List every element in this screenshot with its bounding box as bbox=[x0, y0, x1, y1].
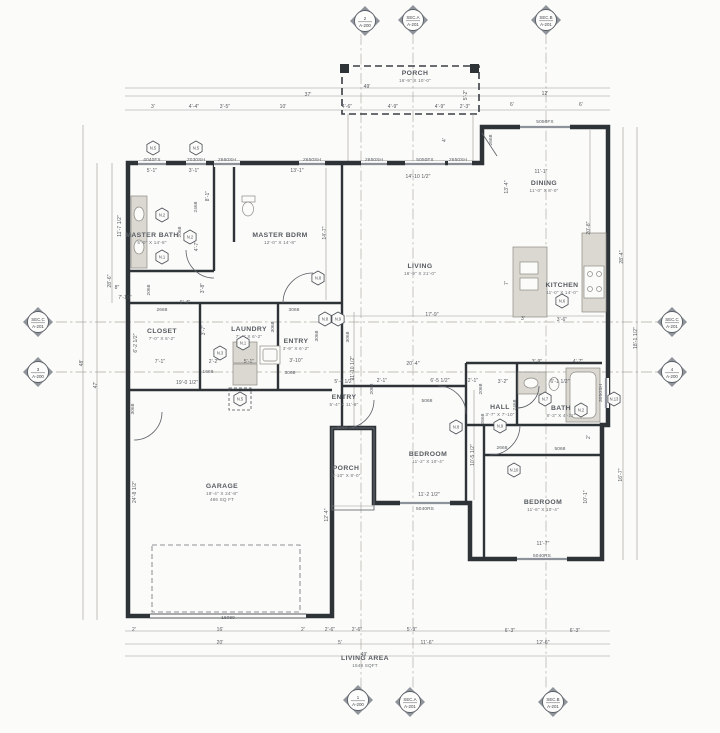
door-label: 3068 bbox=[336, 425, 347, 431]
dimension-label: 6'-4" bbox=[180, 300, 191, 306]
dimension-label: 28'-6" bbox=[107, 274, 113, 287]
door-label: 3068 bbox=[284, 370, 295, 376]
section-marker: 2A-200 bbox=[350, 6, 380, 36]
dimension-label: 10'-1" bbox=[583, 490, 589, 503]
dimension-label: 20'-4" bbox=[406, 361, 419, 367]
dimension-label: 3'-1" bbox=[189, 168, 200, 174]
room-size-label: 7'-0" X 6'-2" bbox=[149, 336, 176, 341]
dimension-label: 17'-9" bbox=[425, 312, 438, 318]
section-marker-circle bbox=[543, 692, 564, 713]
door-swing bbox=[283, 273, 313, 303]
garage-door-swing-dashed bbox=[152, 545, 300, 612]
keynote-marker: N.5 bbox=[190, 141, 202, 155]
keynote-marker: N.5 bbox=[147, 141, 159, 155]
dimension-label: 6'-3" bbox=[505, 628, 516, 634]
keynote-marker: N.1 bbox=[156, 250, 168, 264]
keynote-marker: N.6 bbox=[556, 294, 568, 308]
island-sink bbox=[520, 262, 538, 274]
room-label: BATH bbox=[551, 405, 571, 412]
section-marker-circle bbox=[662, 362, 683, 383]
door-label: 1668 bbox=[202, 369, 213, 375]
dimension-label: 3'-5" bbox=[220, 104, 231, 110]
keynote-label: N.13 bbox=[610, 397, 619, 402]
room-label: CLOSET bbox=[147, 328, 177, 335]
room-size-label: 11'-2" X 10'-4" bbox=[412, 459, 444, 464]
section-marker-circle bbox=[403, 10, 424, 31]
window-label: 4040FX bbox=[143, 157, 161, 163]
window-label: 3050SH bbox=[598, 384, 604, 402]
room-label: ENTRY bbox=[332, 394, 357, 401]
room-size-label: 5'-4" X 11'-8" bbox=[330, 402, 359, 407]
door-label: 2468 bbox=[193, 201, 199, 212]
keynote-label: N.9 bbox=[497, 424, 504, 429]
section-marker-circle bbox=[662, 312, 683, 333]
dimension-label: 7'-10" bbox=[118, 295, 131, 301]
dimension-labels: 49'37'12'3'4'-4"3'-5"10'4'-6"4'-9"4'-9"2… bbox=[79, 84, 639, 658]
section-marker-sheet: A-201 bbox=[547, 704, 559, 709]
dimension-label: 10' bbox=[280, 104, 287, 110]
door-label: 3068 bbox=[288, 307, 299, 313]
door-label: 2668 bbox=[496, 445, 507, 451]
room-label: HALL bbox=[490, 404, 510, 411]
window-label: 5050FX bbox=[416, 157, 434, 163]
dimension-label: 37' bbox=[305, 92, 312, 98]
keynote-label: N.2 bbox=[187, 235, 194, 240]
room-size-label: 11'-6" X 10'-4" bbox=[527, 507, 559, 512]
sink-fixture bbox=[524, 378, 538, 388]
room-label: GARAGE bbox=[206, 483, 238, 490]
dimension-label: 12'-4" bbox=[324, 508, 330, 521]
keynote-label: N.5 bbox=[150, 146, 157, 151]
keynote-marker: N.1 bbox=[237, 336, 249, 350]
dimension-label: 14'-10 1/2" bbox=[406, 174, 431, 180]
porch-post bbox=[470, 64, 479, 73]
dimension-label: 6' bbox=[579, 102, 583, 108]
dimension-label: 7'-1" bbox=[155, 359, 166, 365]
dimension-label: 5'-9" bbox=[407, 627, 418, 633]
keynote-marker: N.2 bbox=[575, 403, 587, 417]
room-label: BEDROOM bbox=[524, 499, 562, 506]
window-label: 2660SH bbox=[218, 157, 236, 163]
dimension-label: 6'-5 1/2" bbox=[430, 378, 449, 384]
dimension-label: 28'-4" bbox=[619, 250, 625, 263]
keynote-label: N.5 bbox=[237, 397, 244, 402]
door-label: 5068 bbox=[421, 398, 432, 404]
dimension-label: 5'-1" bbox=[244, 359, 255, 365]
dimension-label: 2'-1" bbox=[468, 378, 479, 384]
section-marker-sheet: A-201 bbox=[32, 324, 44, 329]
room-size-label: 3'-7" X 7'-10" bbox=[485, 412, 514, 417]
toilet-fixture bbox=[243, 202, 254, 216]
keynote-label: N.1 bbox=[159, 255, 166, 260]
room-label: LIVING bbox=[407, 263, 432, 270]
door-label: 3068 bbox=[314, 330, 320, 341]
room-size-label: 19'-4" X 24'-8" bbox=[206, 491, 238, 496]
window-label: 5050FX bbox=[536, 119, 554, 125]
dimension-label: 49' bbox=[364, 84, 371, 90]
dimension-label: 11'-7 1/2" bbox=[117, 215, 123, 237]
toilet-tank bbox=[242, 196, 255, 202]
section-marker: SEC.CA-201 bbox=[657, 307, 687, 337]
dimension-label: 2'-3" bbox=[460, 104, 471, 110]
dimension-label: 3' bbox=[151, 104, 155, 110]
section-marker-number: SEC.B bbox=[539, 15, 552, 20]
room-area-label: 486 SQ FT bbox=[210, 497, 234, 502]
dimension-label: 3'-9" bbox=[532, 359, 543, 365]
window-label: 16080 bbox=[221, 615, 235, 621]
section-marker-sheet: A-200 bbox=[666, 374, 678, 379]
room-size-label: 11'-0" X 8'-0" bbox=[530, 188, 559, 193]
section-marker-circle bbox=[355, 11, 376, 32]
door-label: 2668 bbox=[156, 307, 167, 313]
dimension-label: 11'-1" bbox=[535, 169, 548, 175]
section-marker: SEC.AA-201 bbox=[398, 5, 428, 35]
dimension-label: 2' bbox=[301, 627, 305, 633]
keynote-label: N.7 bbox=[542, 397, 549, 402]
section-marker: SEC.BA-201 bbox=[531, 5, 561, 35]
door-label: 2668 bbox=[488, 134, 494, 145]
keynote-label: N.6 bbox=[559, 299, 566, 304]
section-marker: 4A-200 bbox=[657, 357, 687, 387]
section-marker-sheet: A-200 bbox=[32, 374, 44, 379]
door-label: 3068 bbox=[345, 331, 351, 342]
dimension-label: 5'-2" bbox=[463, 90, 469, 101]
keynote-marker: N.8 bbox=[450, 420, 462, 434]
door-swing bbox=[438, 386, 466, 414]
door-label: 3068 bbox=[130, 403, 136, 414]
dimension-label: 2'-6" bbox=[325, 627, 336, 633]
room-size-label: 8'-3" X 4'-11" bbox=[547, 413, 576, 418]
window-label: 5040RS bbox=[416, 506, 434, 512]
fixtures bbox=[131, 196, 606, 422]
dimension-label: 11'-7" bbox=[537, 541, 550, 547]
keynote-label: N.8 bbox=[322, 317, 329, 322]
section-marker-number: SEC.C bbox=[31, 317, 44, 322]
keynote-marker: N.3 bbox=[214, 346, 226, 360]
section-marker-sheet: A-201 bbox=[666, 324, 678, 329]
dimension-label: 10'-5 1/2" bbox=[470, 444, 476, 466]
keynote-marker: N.2 bbox=[184, 230, 196, 244]
keynote-marker: N.8 bbox=[312, 271, 324, 285]
window-label: 2030SH bbox=[187, 157, 205, 163]
dimension-label: 4'-9" bbox=[388, 104, 399, 110]
dimension-label: 47' bbox=[93, 382, 99, 389]
dimension-label: 3'-7" bbox=[201, 325, 207, 336]
dimension-label: 12'-6" bbox=[536, 640, 549, 646]
dimension-label: 7' bbox=[504, 281, 510, 285]
door-label: 5068 bbox=[554, 446, 565, 452]
section-cut-lines bbox=[56, 33, 660, 690]
dimension-label: 2'-2" bbox=[209, 359, 220, 365]
door-label: 2068 bbox=[146, 284, 152, 295]
porch-post bbox=[340, 64, 349, 73]
keynote-marker: N.7 bbox=[539, 392, 551, 406]
room-size-label: 4'-10" X 8'-0" bbox=[331, 473, 360, 478]
room-size-label: 1549 SQFT bbox=[352, 663, 378, 668]
window-label: 2650SH bbox=[303, 157, 321, 163]
dimension-label: 5'-4 1/2" bbox=[334, 379, 353, 385]
room-label: MASTER BATH bbox=[125, 232, 178, 239]
keynote-marker: N.2 bbox=[156, 208, 168, 222]
dimension-label: 4'-7" bbox=[194, 241, 200, 252]
dimension-label: 18'-1 1/2" bbox=[633, 327, 639, 349]
dimension-label: 3'-10" bbox=[289, 358, 302, 364]
dimension-label: 11'-10 1/2" bbox=[350, 356, 356, 381]
room-label: BEDROOM bbox=[409, 451, 447, 458]
room-label: PORCH bbox=[333, 465, 360, 472]
dimension-label: 16' bbox=[217, 627, 224, 633]
room-label: LIVING AREA bbox=[341, 655, 389, 662]
room-size-label: 12'-0" X 14'-8" bbox=[264, 240, 296, 245]
section-marker-sheet: A-200 bbox=[352, 702, 364, 707]
dimension-label: 13'-1" bbox=[290, 168, 303, 174]
section-marker: SEC.AA-201 bbox=[395, 687, 425, 717]
keynote-marker: N.9 bbox=[494, 419, 506, 433]
dimension-label: 6'-2 1/2" bbox=[133, 333, 139, 352]
room-size-label: 16'-9" X 10'-0" bbox=[399, 78, 431, 83]
room-size-label: 16'-9" X 21'-0" bbox=[404, 271, 436, 276]
dryer-fixture bbox=[233, 364, 257, 385]
keynote-label: N.2 bbox=[159, 213, 166, 218]
dimension-label: 3'-8" bbox=[200, 283, 206, 294]
room-label: ENTRY bbox=[284, 338, 309, 345]
section-marker: 3A-200 bbox=[23, 357, 53, 387]
section-marker-number: SEC.A bbox=[406, 15, 419, 20]
keynote-label: N.2 bbox=[578, 408, 585, 413]
keynote-marker: N.9 bbox=[332, 312, 344, 326]
dimension-label: 4'-9" bbox=[435, 104, 446, 110]
section-marker-number: SEC.C bbox=[665, 317, 678, 322]
section-marker-sheet: A-201 bbox=[407, 22, 419, 27]
keynote-label: N.1 bbox=[240, 341, 247, 346]
section-marker-number: SEC.A bbox=[403, 697, 416, 702]
section-marker-circle bbox=[400, 692, 421, 713]
section-marker-sheet: A-200 bbox=[359, 23, 371, 28]
dimension-label: 5'-1" bbox=[147, 168, 158, 174]
keynote-marker: N.5 bbox=[229, 388, 251, 410]
room-label: PORCH bbox=[402, 70, 429, 77]
section-marker: 1A-200 bbox=[343, 685, 373, 715]
section-marker-circle bbox=[348, 690, 369, 711]
dimension-label: 2' bbox=[132, 627, 136, 633]
door-swing bbox=[134, 412, 162, 440]
range-fixture bbox=[584, 266, 604, 298]
dimension-label: 4' bbox=[442, 138, 448, 142]
dimension-label: 11'-6" bbox=[421, 640, 434, 646]
section-marker-circle bbox=[28, 362, 49, 383]
window-label: 2650SH bbox=[365, 157, 383, 163]
floor-plan-sheet: 4040FX2030SH2660SH2650SH2650SH5050FX2650… bbox=[0, 0, 720, 733]
keynote-marker: N.13 bbox=[608, 392, 620, 406]
section-marker: SEC.CA-201 bbox=[23, 307, 53, 337]
dimension-label: 16'-7" bbox=[618, 468, 624, 481]
dimension-label: 20' bbox=[217, 640, 224, 646]
dimension-label: 5' bbox=[338, 640, 342, 646]
dimension-label: 4'-6" bbox=[342, 104, 353, 110]
floor-plan-drawing: 4040FX2030SH2660SH2650SH2650SH5050FX2650… bbox=[0, 0, 720, 733]
section-marker-sheet: A-201 bbox=[540, 22, 552, 27]
island-sink bbox=[520, 278, 538, 290]
keynote-label: N.10 bbox=[510, 468, 519, 473]
dimension-label: 20'-8" bbox=[586, 221, 592, 234]
dimension-label: 2' bbox=[586, 435, 592, 439]
dimension-label: 6'-3" bbox=[570, 628, 581, 634]
dimension-label: 24'-8 1/2" bbox=[132, 481, 138, 503]
dimension-label: 8" bbox=[115, 285, 120, 291]
garage-door bbox=[150, 545, 306, 621]
room-size-label: 5'-0" X 14'-8" bbox=[137, 240, 166, 245]
dimension-label: 6' bbox=[510, 102, 514, 108]
keynote-label: N.8 bbox=[315, 276, 322, 281]
dimension-label: 11'-2 1/2" bbox=[418, 492, 440, 498]
laundry-sink-basin bbox=[263, 349, 277, 361]
keynote-marker: N.10 bbox=[508, 463, 520, 477]
dimension-label: 6'-1 1/2" bbox=[550, 379, 569, 385]
dimension-label: 12' bbox=[542, 91, 549, 97]
door-label: 3068 bbox=[270, 321, 276, 332]
door-label: 2468 bbox=[512, 399, 518, 410]
dimension-label: 3'-2" bbox=[498, 379, 509, 385]
keynote-marker: N.8 bbox=[319, 312, 331, 326]
section-marker-circle bbox=[28, 312, 49, 333]
dimension-label: 19'-0 1/2" bbox=[176, 380, 198, 386]
dimension-label: 8'-1" bbox=[205, 191, 211, 202]
dimension-label: 2'-6" bbox=[352, 627, 363, 633]
door-swing bbox=[186, 250, 214, 278]
dimension-label: 2'-1" bbox=[377, 378, 388, 384]
dimension-label: 3'-6" bbox=[557, 317, 568, 323]
window-label: 2650SH bbox=[449, 157, 467, 163]
window-label: 5040RS bbox=[533, 553, 551, 559]
keynote-label: N.3 bbox=[217, 351, 224, 356]
section-marker: SEC.BA-201 bbox=[538, 687, 568, 717]
room-label: DINING bbox=[531, 180, 557, 187]
room-label: KITCHEN bbox=[545, 282, 578, 289]
keynote-label: N.5 bbox=[193, 146, 200, 151]
dimension-label: 4'-4" bbox=[189, 104, 200, 110]
room-size-label: 3'-9" X 6'-2" bbox=[283, 346, 310, 351]
dimension-label: 14'-7" bbox=[322, 226, 328, 239]
keynote-label: N.9 bbox=[335, 317, 342, 322]
dimension-label: 3' bbox=[521, 316, 525, 322]
sink-fixture bbox=[134, 207, 144, 221]
dimension-label: 4'-7" bbox=[573, 359, 584, 365]
keynote-label: N.8 bbox=[453, 425, 460, 430]
dimension-label: 13'-4" bbox=[504, 180, 510, 193]
section-marker-sheet: A-201 bbox=[404, 704, 416, 709]
door-label: 2068 bbox=[478, 383, 484, 394]
room-label: MASTER BDRM bbox=[252, 232, 307, 239]
section-marker-number: SEC.B bbox=[546, 697, 559, 702]
room-label: LAUNDRY bbox=[231, 326, 267, 333]
section-marker-circle bbox=[536, 10, 557, 31]
door-label: 2068 bbox=[369, 383, 375, 394]
dimension-label: 48' bbox=[79, 360, 85, 367]
